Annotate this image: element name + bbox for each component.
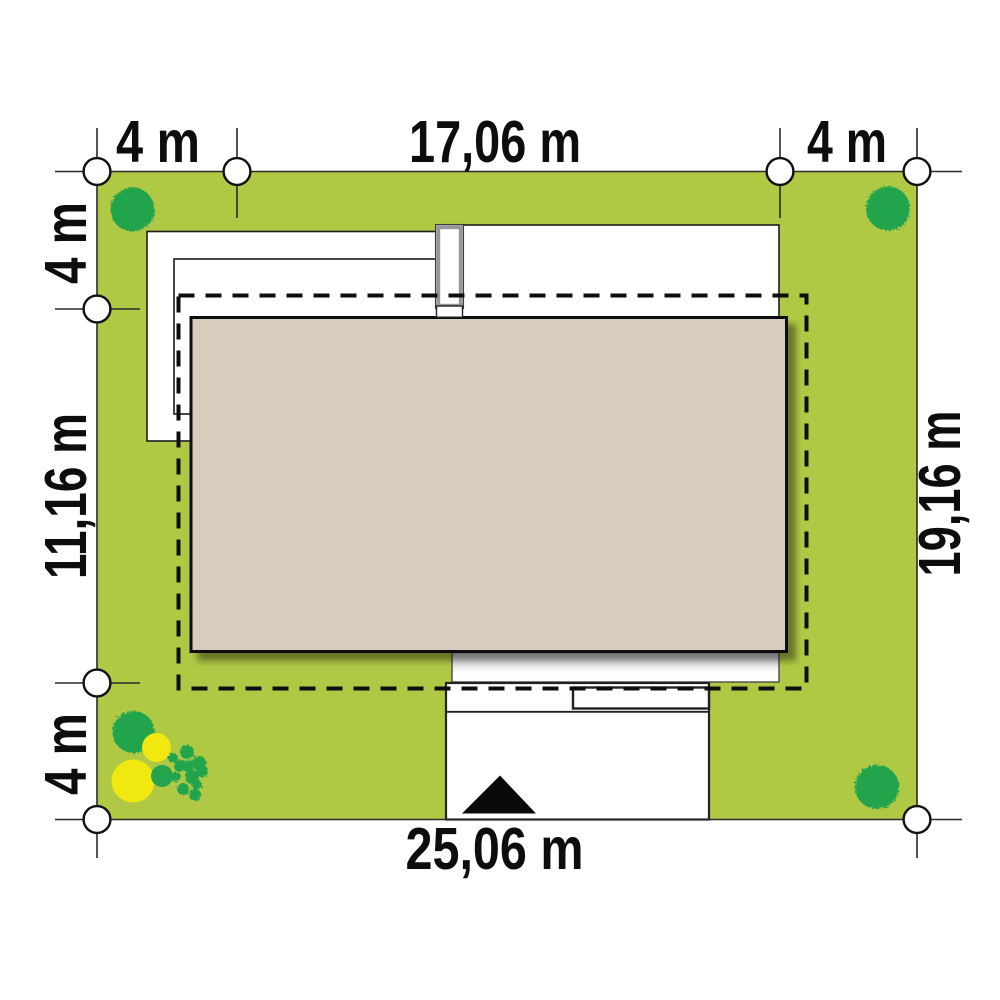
svg-text:4 m: 4 m (116, 109, 200, 175)
svg-text:11,16 m: 11,16 m (33, 413, 99, 579)
svg-text:25,06 m: 25,06 m (406, 816, 584, 882)
svg-text:4 m: 4 m (807, 109, 887, 175)
svg-text:17,06 m: 17,06 m (409, 109, 581, 175)
svg-text:19,16 m: 19,16 m (907, 411, 973, 577)
svg-text:4 m: 4 m (33, 713, 99, 795)
svg-text:4 m: 4 m (33, 202, 99, 284)
